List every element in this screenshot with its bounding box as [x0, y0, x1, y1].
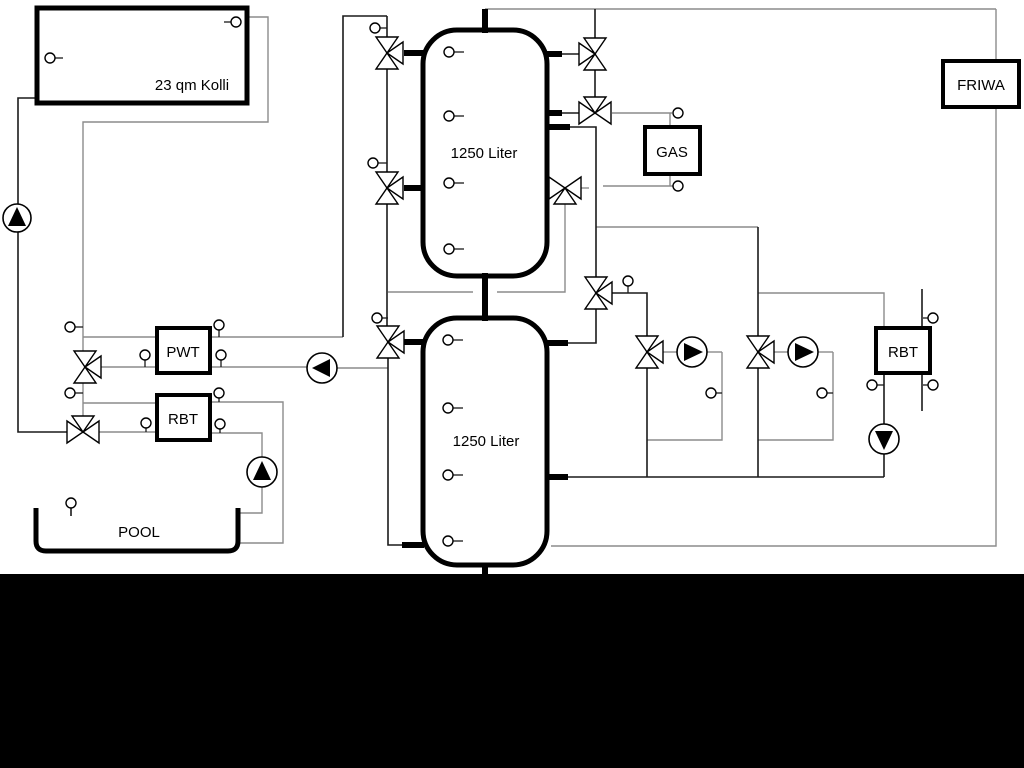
- sensor-left-line-low-icon: [372, 313, 388, 323]
- sensor-circuit2-icon: [817, 388, 833, 398]
- pipe-rbt-right-feed: [758, 293, 884, 328]
- rbt-pool-label: RBT: [168, 411, 198, 428]
- tank1-label: 1250 Liter: [451, 145, 518, 162]
- valve-gas-supply-icon: [579, 97, 611, 124]
- sensor-rbt-out-lower-icon: [215, 419, 225, 433]
- valve-rbt-primary-icon: [67, 416, 99, 443]
- valve-distribution-icon: [585, 277, 612, 309]
- valve-circuit2-mixer-icon: [747, 336, 774, 368]
- pipe-collector-flow: [18, 98, 67, 432]
- valve-tank1-right-top-icon: [579, 38, 606, 70]
- pipe-valve-c-to-tank2: [566, 309, 596, 343]
- sensor-rbt-secondary-bottom-icon: [923, 380, 938, 390]
- pump-rbt-right-icon: [869, 424, 899, 454]
- sensor-gas-bottom-icon: [673, 181, 683, 191]
- pipe-pool-pump-suction: [238, 487, 262, 513]
- sensor-return-upper-icon: [65, 322, 83, 332]
- pipe-friwa-return: [551, 9, 996, 546]
- pump-pwt-icon: [307, 353, 337, 383]
- sensor-left-line-mid-icon: [368, 158, 387, 168]
- sensor-left-line-top-icon: [370, 23, 387, 33]
- sensor-pwt-out-upper-icon: [214, 320, 224, 337]
- sensor-pwt-out-lower-icon: [216, 350, 226, 367]
- rbt-right-label: RBT: [888, 344, 918, 361]
- collector-label: 23 qm Kolli: [155, 77, 229, 94]
- tank2-label: 1250 Liter: [453, 433, 520, 450]
- sensor-pool-icon: [66, 498, 76, 508]
- sensor-return-lower-icon: [65, 388, 83, 398]
- pump-circuit1-icon: [677, 337, 707, 367]
- sensor-rbt-out-upper-icon: [214, 388, 224, 402]
- schematic-canvas: 23 qm Kolli 1250 Liter 1250 Liter GAS FR…: [0, 0, 1024, 768]
- valve-gas-return-icon: [549, 177, 581, 204]
- sensor-pwt-in-icon: [140, 350, 150, 367]
- hydraulic-schematic: 23 qm Kolli 1250 Liter 1250 Liter GAS FR…: [0, 0, 1024, 768]
- friwa-label: FRIWA: [957, 77, 1005, 94]
- sensor-distribution-icon: [623, 276, 633, 293]
- valve-tank1-left-top-icon: [376, 37, 403, 69]
- sensor-rbt-right-return-icon: [867, 380, 884, 390]
- pump-pool-icon: [247, 457, 277, 487]
- valve-tank2-left-icon: [377, 326, 404, 358]
- valve-pwt-primary-icon: [74, 351, 101, 383]
- sensor-rbt-in-icon: [141, 418, 151, 432]
- sensor-circuit1-icon: [706, 388, 722, 398]
- pump-collector-icon: [3, 204, 31, 232]
- black-letterbox-band: [0, 574, 1024, 768]
- valve-tank1-left-bottom-icon: [376, 172, 403, 204]
- pipe-rbt-to-pool-pump: [210, 433, 262, 457]
- gas-label: GAS: [656, 144, 688, 161]
- sensor-rbt-secondary-top-icon: [923, 313, 938, 323]
- pump-circuit2-icon: [788, 337, 818, 367]
- sensor-gas-top-icon: [673, 108, 683, 118]
- pipe-valve-c-to-circuit1: [610, 293, 647, 336]
- valve-circuit1-mixer-icon: [636, 336, 663, 368]
- pool-label: POOL: [118, 524, 160, 541]
- pwt-label: PWT: [166, 344, 199, 361]
- pipe-valve-l-to-tank2: [388, 358, 404, 545]
